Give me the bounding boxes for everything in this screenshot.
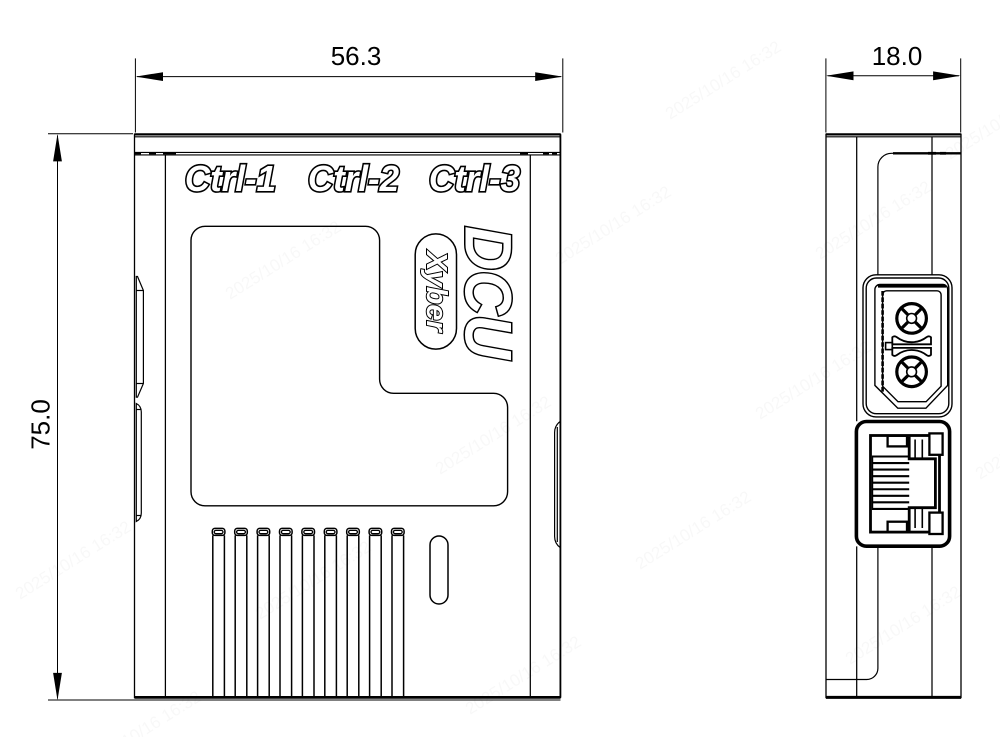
svg-text:DCU: DCU <box>451 226 526 361</box>
svg-text:Ctrl-3: Ctrl-3 <box>429 159 520 200</box>
svg-text:Xyber: Xyber <box>420 249 452 333</box>
svg-text:56.3: 56.3 <box>331 41 382 71</box>
svg-text:75.0: 75.0 <box>26 399 56 450</box>
svg-text:18.0: 18.0 <box>872 41 923 71</box>
svg-text:Ctrl-1: Ctrl-1 <box>185 159 276 200</box>
svg-text:Ctrl-2: Ctrl-2 <box>308 159 399 200</box>
